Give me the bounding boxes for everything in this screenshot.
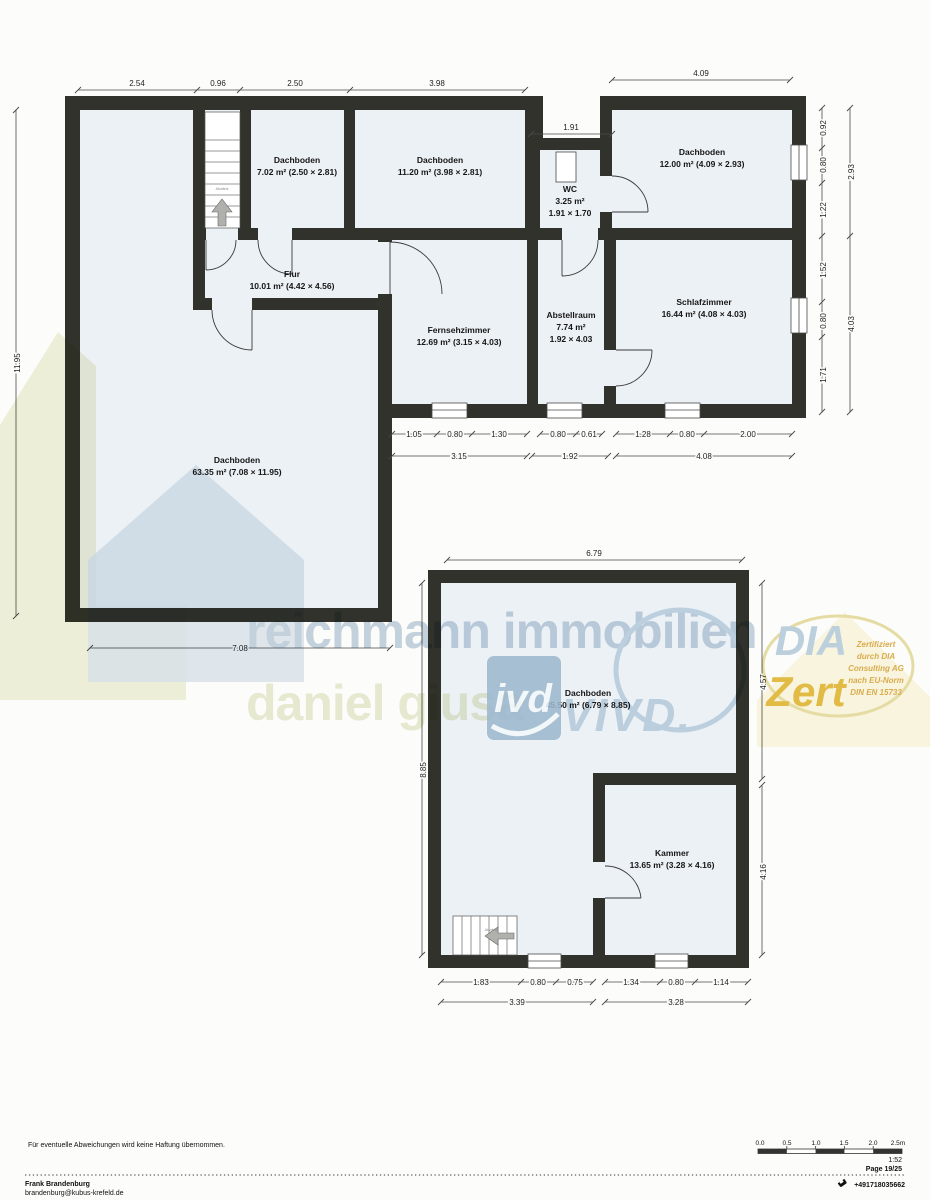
svg-text:1.83: 1.83: [473, 978, 489, 987]
room-name: Dachboden: [214, 455, 260, 465]
upper-dims-right: 0.92 0.80 1.22 1.52 0.80 1.71 2.93 4.03: [819, 105, 856, 415]
brand-text-giusa: daniel giusa: [246, 675, 525, 731]
svg-text:4.16: 4.16: [759, 864, 768, 880]
svg-text:2.54: 2.54: [129, 79, 145, 88]
svg-text:2.5m: 2.5m: [891, 1140, 905, 1147]
svg-text:0.92: 0.92: [819, 120, 828, 136]
room-name: Dachboden: [274, 155, 320, 165]
room-size: 1.92 × 4.03: [550, 334, 593, 344]
dim-right-top: 4.09: [693, 69, 709, 78]
stair-label: Abwärts: [485, 928, 498, 932]
room-size: 1.91 × 1.70: [549, 208, 592, 218]
zert-text: Zert: [765, 668, 847, 715]
room-name: Schlafzimmer: [676, 297, 732, 307]
svg-text:0.80: 0.80: [819, 157, 828, 173]
svg-text:0.0: 0.0: [755, 1140, 764, 1147]
room-size: 13.65 m² (3.28 × 4.16): [630, 860, 715, 870]
room-name: Fernsehzimmer: [428, 325, 492, 335]
room-size: 7.02 m² (2.50 × 2.81): [257, 167, 337, 177]
upper-staircase: Abwärts: [205, 112, 240, 228]
svg-text:1.14: 1.14: [713, 978, 729, 987]
room-name: WC: [563, 184, 577, 194]
svg-text:0.80: 0.80: [679, 430, 695, 439]
room-name: Abstellraum: [546, 310, 596, 320]
svg-text:1.22: 1.22: [819, 202, 828, 218]
room-name: Dachboden: [679, 147, 725, 157]
room-size: 11.20 m² (3.98 × 2.81): [398, 167, 483, 177]
footer: Für eventuelle Abweichungen wird keine H…: [25, 1140, 905, 1197]
svg-text:2.93: 2.93: [847, 164, 856, 180]
room-size: 12.00 m² (4.09 × 2.93): [660, 159, 745, 169]
room-size: 10.01 m² (4.42 × 4.56): [250, 281, 335, 291]
svg-text:3.28: 3.28: [668, 998, 684, 1007]
contact-phone: +491718035662: [854, 1182, 905, 1189]
ivd-logo-text: ivd: [494, 677, 553, 721]
svg-text:1.34: 1.34: [623, 978, 639, 987]
room-size: 12.69 m² (3.15 × 4.03): [417, 337, 502, 347]
phone-icon: [838, 1179, 847, 1188]
wc-shaft: [556, 152, 576, 182]
dim-wc-width: 1.91: [563, 123, 579, 132]
dia-text: DIA: [775, 617, 847, 664]
svg-text:0.80: 0.80: [550, 430, 566, 439]
svg-text:1.30: 1.30: [491, 430, 507, 439]
svg-text:4.08: 4.08: [696, 452, 712, 461]
svg-text:1.92: 1.92: [562, 452, 578, 461]
svg-text:2.0: 2.0: [868, 1140, 877, 1147]
svg-text:1.5: 1.5: [839, 1140, 848, 1147]
dim-lower-left: 8.85: [419, 762, 428, 778]
svg-text:Consulting AG: Consulting AG: [848, 664, 904, 673]
contact-email: brandenburg@kubus-krefeld.de: [25, 1190, 124, 1197]
svg-text:Zertifiziert: Zertifiziert: [856, 640, 896, 649]
svg-text:2.00: 2.00: [740, 430, 756, 439]
svg-text:0.5: 0.5: [782, 1140, 791, 1147]
svg-text:1.0: 1.0: [811, 1140, 820, 1147]
stair-label: Abwärts: [216, 187, 229, 191]
svg-text:3.98: 3.98: [429, 79, 445, 88]
svg-text:1.05: 1.05: [406, 430, 422, 439]
floor-plan-drawing: Abwärts Dachboden 7.02 m² (2.50 × 2.81) …: [0, 0, 930, 1200]
svg-text:1.28: 1.28: [635, 430, 651, 439]
ivd-logo: ivd: [487, 656, 561, 740]
scale-bar: 0.0 0.5 1.0 1.5 2.0 2.5m: [755, 1140, 905, 1154]
svg-text:DIN EN 15733: DIN EN 15733: [850, 688, 902, 697]
room-name: Kammer: [655, 848, 690, 858]
svg-text:2.50: 2.50: [287, 79, 303, 88]
room-size: 16.44 m² (4.08 × 4.03): [662, 309, 747, 319]
svg-text:durch DIA: durch DIA: [857, 652, 895, 661]
svg-text:1.52: 1.52: [819, 262, 828, 278]
room-area: 3.25 m²: [555, 196, 584, 206]
svg-text:0.96: 0.96: [210, 79, 226, 88]
svg-text:0.80: 0.80: [668, 978, 684, 987]
vivd-text: VIVD.: [562, 689, 692, 741]
svg-text:3.39: 3.39: [509, 998, 525, 1007]
svg-text:3.15: 3.15: [451, 452, 467, 461]
dim-lower-top: 6.79: [586, 549, 602, 558]
lower-staircase: Abwärts: [453, 916, 517, 955]
svg-text:0.61: 0.61: [581, 430, 597, 439]
svg-text:0.80: 0.80: [819, 313, 828, 329]
scale-ratio: 1:52: [888, 1157, 902, 1164]
kammer-door-opening: [593, 862, 605, 898]
disclaimer-text: Für eventuelle Abweichungen wird keine H…: [28, 1142, 225, 1149]
room-name: Dachboden: [417, 155, 463, 165]
contact-name: Frank Brandenburg: [25, 1181, 90, 1188]
svg-text:nach EU-Norm: nach EU-Norm: [848, 676, 904, 685]
svg-text:4.03: 4.03: [847, 316, 856, 332]
svg-text:0.80: 0.80: [530, 978, 546, 987]
room-name: Flur: [284, 269, 301, 279]
svg-text:0.75: 0.75: [567, 978, 583, 987]
svg-text:0.80: 0.80: [447, 430, 463, 439]
dim-left-total: 11.95: [13, 353, 22, 373]
page-number: Page 19/25: [866, 1166, 902, 1173]
floor-plan-page: Abwärts Dachboden 7.02 m² (2.50 × 2.81) …: [0, 0, 930, 1200]
svg-text:1.71: 1.71: [819, 367, 828, 383]
room-area: 7.74 m²: [556, 322, 585, 332]
zert-cert-text: Zertifiziert durch DIA Consulting AG nac…: [848, 640, 904, 697]
